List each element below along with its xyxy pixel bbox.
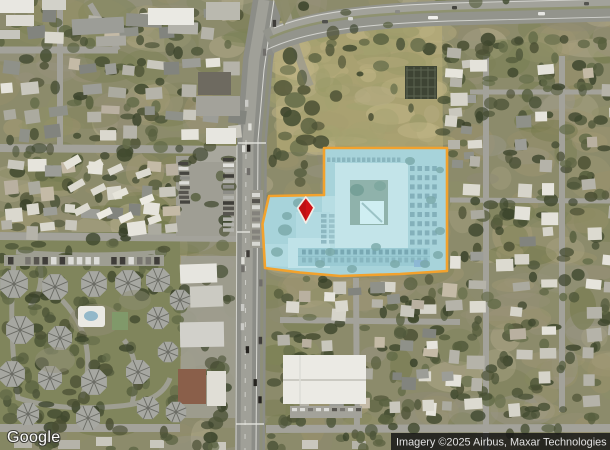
- svg-text:Google: Google: [7, 429, 60, 446]
- svg-text:Imagery ©2025 Airbus, Maxar Te: Imagery ©2025 Airbus, Maxar Technologies: [396, 437, 607, 449]
